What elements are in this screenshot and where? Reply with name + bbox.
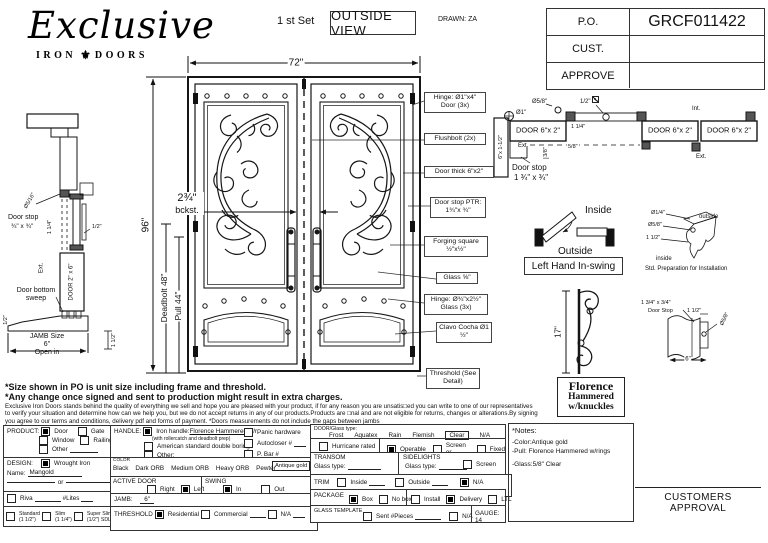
package-install-checkbox[interactable] xyxy=(411,495,420,504)
package-delivery-label: Delivery xyxy=(459,496,482,503)
design-or-label: or xyxy=(58,479,64,486)
disclaimer-line2: *Any change once signed and sent to prod… xyxy=(5,392,343,402)
sidelights-screen-checkbox[interactable] xyxy=(463,460,472,469)
swing-type-label: Left Hand In-swing xyxy=(524,257,623,275)
threshold-com-blank[interactable] xyxy=(250,511,266,518)
logo-word-doors: DOORS xyxy=(95,50,148,61)
handle-american-checkbox[interactable] xyxy=(144,442,153,451)
approve-row: APPROVE xyxy=(547,63,764,88)
trim-outside-blank[interactable] xyxy=(432,479,448,486)
disclaimer-paragraph: Exclusive Iron Doors stands behind the q… xyxy=(5,403,538,425)
standard-sub: (1 1/2") xyxy=(19,517,36,523)
swing-diagram xyxy=(535,212,614,246)
td-stop2: 1 ¾" x ¾" xyxy=(514,173,548,182)
trim-title: TRIM xyxy=(314,479,329,486)
logo-word-iron: IRON xyxy=(36,50,76,61)
package-nobox-label: No box xyxy=(392,496,412,503)
product-other-label: Other xyxy=(52,446,68,453)
left-jamb-detail xyxy=(8,114,112,353)
package-box-checkbox[interactable] xyxy=(349,495,358,504)
thickness-cell: Standard(1 1/2") Slim(1 1/4") Super Slim… xyxy=(3,506,116,527)
riva-checkbox[interactable] xyxy=(7,494,16,503)
dim-backset: 2¾" bckst. xyxy=(170,192,204,215)
handle-extra-options: Panic hardware Autocloser # P. Bar # xyxy=(244,428,306,459)
pull-name3: w/knuckles xyxy=(558,403,624,413)
trim-na-checkbox[interactable] xyxy=(460,478,469,487)
threshold-com-checkbox[interactable] xyxy=(201,510,210,519)
note-pull: -Pull: Florence Hammered w/rings xyxy=(512,448,630,455)
threshold-res-checkbox[interactable] xyxy=(155,510,164,519)
pull-handle-detail xyxy=(562,289,598,374)
lites-label: #Lites xyxy=(63,495,80,502)
pull-dim: 17" xyxy=(553,325,562,339)
design-cell: DESIGN: Wrought Iron Name: Mangold or xyxy=(3,457,118,495)
design-title: DESIGN: xyxy=(7,460,33,467)
superslim-sub: (1/2") SDL xyxy=(87,517,111,523)
po-label: P.O. xyxy=(547,9,630,35)
td-dia1: Ø1" xyxy=(516,110,526,117)
handle-iron-name: Florence Hammered xyxy=(190,428,247,435)
left-dim12: 1/2" xyxy=(92,224,102,230)
slim-checkbox[interactable] xyxy=(42,512,51,521)
package-install-label: Install xyxy=(424,496,440,503)
template-sent-blank[interactable] xyxy=(415,513,441,520)
threshold-na-label: N/A xyxy=(281,511,292,518)
threshold-com-label: Commercial xyxy=(214,511,248,518)
left-doorstop-label: Door stop xyxy=(8,214,38,222)
td-door2: DOOR 6"x 2" xyxy=(648,127,692,136)
left-doorstop-size: ¾" x ¾" xyxy=(11,223,33,230)
prep-outside: outside xyxy=(699,214,718,221)
color-mediumorb[interactable]: Medium ORB xyxy=(171,465,209,472)
sidelights-title: SIDELIGHTS xyxy=(403,454,440,461)
color-cell: COLOR Black Dark ORB Medium ORB Heavy OR… xyxy=(110,457,312,478)
design-wrought-label: Wrought Iron xyxy=(54,460,90,467)
autocloser-checkbox[interactable] xyxy=(244,439,253,448)
trim-outside-label: Outside xyxy=(408,479,430,486)
template-sent-checkbox[interactable] xyxy=(363,512,372,521)
package-box-label: Box xyxy=(362,496,373,503)
swing-inside-label: Inside xyxy=(585,205,612,217)
customers-approval-label: CUSTOMERS APPROVAL xyxy=(664,492,731,514)
left-dim112: 1 1/2" xyxy=(111,333,117,347)
riva-label: Riva xyxy=(20,495,33,502)
active-right-label: Right xyxy=(160,486,175,493)
note-color: -Color:Antique gold xyxy=(512,439,630,446)
slim-label: Slim(1 1/4") xyxy=(55,511,72,523)
cell-divider xyxy=(379,438,380,453)
jamb-profile-detail xyxy=(668,310,717,360)
po-table: P.O.GRCF011422 CUST. APPROVE xyxy=(546,8,765,90)
td-dim58: 5/8" xyxy=(567,144,579,150)
td-dia58: Ø5/8" xyxy=(532,99,547,106)
sidelights-glass-label: Glass type: xyxy=(405,463,437,470)
design-name-label: Name: xyxy=(7,470,26,477)
template-na-checkbox[interactable] xyxy=(449,512,458,521)
color-title: COLOR xyxy=(113,458,130,463)
product-railing-checkbox[interactable] xyxy=(80,436,89,445)
jamb-size-label: JAMB Size xyxy=(22,333,72,341)
trim-inside-blank[interactable] xyxy=(369,479,385,486)
hurricane-label: Hurricane rated xyxy=(332,443,375,450)
glass-template-cell: GLASS TEMPLATE Sent #Pieces N/A GAUGE: 1… xyxy=(310,505,506,523)
cell-divider xyxy=(311,438,505,439)
profile-d6: 6" xyxy=(684,357,691,364)
prep-d112: 1 1/2" xyxy=(646,235,660,241)
swing-outside-label: Outside xyxy=(558,246,592,258)
customers-approval[interactable]: CUSTOMERS APPROVAL xyxy=(635,487,761,514)
set-label: 1 st Set xyxy=(277,15,314,28)
color-options: Black Dark ORB Medium ORB Heavy ORB Pewt… xyxy=(113,465,276,472)
callout-clavo: Clavo Cocha Ø1 ½" xyxy=(436,322,492,343)
transom-title: TRANSOM xyxy=(314,454,346,461)
handle-iron-pre: Iron handle: xyxy=(156,428,189,435)
cust-label: CUST. xyxy=(547,36,630,62)
autocloser-blank[interactable] xyxy=(294,440,306,447)
left-dim114: 1 1/4" xyxy=(47,220,53,234)
package-ltl-checkbox[interactable] xyxy=(488,495,497,504)
left-door-size: DOOR 2" x 6" xyxy=(69,264,76,301)
template-sent-label: Sent #Pieces xyxy=(376,513,413,520)
standard-checkbox[interactable] xyxy=(6,512,15,521)
profile-d112: 1 1/2" xyxy=(687,308,701,314)
design-name-value[interactable]: Mangold xyxy=(28,469,82,477)
spec-sheet: Exclusive IRON ⚜ DOORS 1 st Set OUTSIDE … xyxy=(0,0,768,543)
po-number: GRCF011422 xyxy=(630,9,764,35)
sidelights-screen-label: Screen xyxy=(476,461,496,468)
pull-name-box: Florence Hammered w/knuckles xyxy=(557,377,625,417)
or-divider xyxy=(7,482,55,483)
product-gate-checkbox[interactable] xyxy=(78,427,87,436)
trim-inside-checkbox[interactable] xyxy=(337,478,346,487)
color-heavyorb[interactable]: Heavy ORB xyxy=(216,465,249,472)
po-row: P.O.GRCF011422 xyxy=(547,9,764,36)
td-dim114: 1 1/4" xyxy=(570,124,586,130)
autocloser-label: Autocloser # xyxy=(257,440,292,447)
transom-glass-blank[interactable] xyxy=(348,463,381,470)
threshold-na-blank[interactable] xyxy=(293,511,305,518)
td-int1: Int. xyxy=(692,106,700,113)
slim-sub: (1 1/4") xyxy=(55,517,72,523)
gauge-label: GAUGE: 14 xyxy=(475,510,505,524)
color-darkorb[interactable]: Dark ORB xyxy=(135,465,164,472)
product-gate-label: Gate xyxy=(91,428,105,435)
product-cell: PRODUCT: Door Gate Window Railing Other xyxy=(3,425,118,461)
handle-iron-label: Iron handle:Florence Hammered w/r xyxy=(156,428,257,435)
package-title: PACKAGE xyxy=(314,492,344,499)
handle-cell: HANDLE: Iron handle:Florence Hammered w/… xyxy=(110,425,318,461)
td-dim38: 3/8" xyxy=(543,146,549,158)
pull-name1: Florence xyxy=(558,380,624,393)
cust-value[interactable] xyxy=(630,36,764,62)
profile-stop1: 1 3/4" x 3/4" xyxy=(641,300,671,306)
swing-title: SWING xyxy=(205,478,226,485)
transom-glass-label: Glass type: xyxy=(314,463,346,470)
color-black[interactable]: Black xyxy=(113,465,128,472)
trim-outside-checkbox[interactable] xyxy=(395,478,404,487)
riva-blank[interactable] xyxy=(35,495,61,502)
left-ext-label: Ext. xyxy=(39,263,46,273)
cell-divider xyxy=(398,453,399,475)
callout-flushbolt: Flushbolt (2x) xyxy=(424,133,486,145)
standard-label: Standard(1 1/2") xyxy=(19,511,40,523)
prep-d14: Ø1/4" xyxy=(651,210,665,216)
or-divider xyxy=(66,482,114,483)
callout-threshold: Threshold (See Detail) xyxy=(426,368,480,389)
backset-value: 2¾" xyxy=(170,192,204,205)
td-dim12-text: 1/2" xyxy=(580,99,590,105)
jamb-title: JAMB: xyxy=(114,496,133,503)
notes-title: *Notes: xyxy=(512,426,630,435)
product-other-blank[interactable] xyxy=(70,446,98,453)
prep-inside: inside xyxy=(656,256,672,263)
cell-divider xyxy=(471,506,472,522)
callout-door-thick: Door thick 6"x2" xyxy=(424,166,494,178)
superslim-checkbox[interactable] xyxy=(74,512,83,521)
product-other-checkbox[interactable] xyxy=(39,445,48,454)
product-door-label: Door xyxy=(54,428,68,435)
door-drawing xyxy=(188,77,420,371)
drawn-by: DRAWN: ZA xyxy=(438,16,477,24)
approve-label: APPROVE xyxy=(547,63,630,88)
td-jamb-size: 6"x 1-1/2" xyxy=(498,134,504,160)
panic-label: Panic hardware xyxy=(257,429,301,436)
callout-hinge-glass: Hinge: Ø¾"x2½" Glass (3x) xyxy=(424,294,488,315)
cell-divider xyxy=(406,490,407,506)
glass-type-cell: DOOR/Glass type: Frost Aquatex Rain Flem… xyxy=(310,424,506,454)
swing-out-label: Out xyxy=(274,486,284,493)
panic-checkbox[interactable] xyxy=(244,428,253,437)
callout-forging: Forging square ½"x½" xyxy=(424,236,488,257)
jamb-value[interactable]: 6" xyxy=(140,496,154,504)
active-left-label: Left xyxy=(194,486,205,493)
callout-glass: Glass ⅝" xyxy=(436,272,478,284)
design-wrought-checkbox[interactable] xyxy=(41,459,50,468)
callout-door-stop: Door stop PTR: 1¾"x ¾" xyxy=(430,197,486,218)
logo-subtitle: IRON ⚜ DOORS xyxy=(36,48,148,63)
cust-row: CUST. xyxy=(547,36,764,63)
threshold-title: THRESHOLD xyxy=(114,511,153,518)
package-nobox-checkbox[interactable] xyxy=(379,495,388,504)
td-door3: DOOR 6"x 2" xyxy=(707,127,751,136)
threshold-res-label: Residential xyxy=(168,511,199,518)
logo-exclusive: Exclusive xyxy=(28,4,215,47)
td-ext1: Ext. xyxy=(518,143,528,150)
disclaimer-line1: *Size shown in PO is unit size including… xyxy=(5,382,266,392)
jamb-size-value: 6" xyxy=(22,341,72,349)
backset-unit: bckst. xyxy=(170,205,204,215)
cell-divider xyxy=(201,477,202,494)
left-dim12b: 1/2" xyxy=(3,315,9,325)
active-door-title: ACTIVE DOOR xyxy=(113,478,156,485)
notes-box: *Notes: -Color:Antique gold -Pull: Flore… xyxy=(508,423,634,522)
td-stop1: Door stop xyxy=(512,163,547,172)
swing-in-label: In xyxy=(236,486,241,493)
handle-american-label: American standard double boring xyxy=(157,443,250,450)
handle-title: HANDLE: xyxy=(114,428,141,435)
td-ext2: Ext. xyxy=(696,154,706,161)
dim-pull: Pull 44" xyxy=(174,290,184,321)
note-glass: -Glass:5/8" Clear xyxy=(512,461,630,468)
dim-width: 72" xyxy=(288,57,305,69)
trim-na-label: N/A xyxy=(473,479,484,486)
package-delivery-checkbox[interactable] xyxy=(446,495,455,504)
handle-iron-checkbox[interactable] xyxy=(143,427,152,436)
approve-value[interactable] xyxy=(630,63,764,88)
product-title: PRODUCT: xyxy=(7,428,39,435)
callout-hinge-door: Hinge: Ø1"x4" Door (3x) xyxy=(424,92,486,113)
prep-d58: Ø5/8" xyxy=(648,222,662,228)
profile-stop2: Door Stop xyxy=(648,308,673,314)
td-dim12: 1/2" xyxy=(580,96,599,106)
color-selected[interactable]: Antique gold xyxy=(272,461,310,471)
transom-sidelights-cell: TRANSOM Glass type: SIDELIGHTS Glass typ… xyxy=(310,452,506,476)
left-sweep-label: Door bottom sweep xyxy=(16,287,56,303)
dim-deadbolt: Deadbolt 48" xyxy=(160,273,170,324)
hurricane-checkbox[interactable] xyxy=(319,442,328,451)
dim-height: 96" xyxy=(140,217,152,234)
left-jamb-size: JAMB Size 6" Open in xyxy=(22,333,72,357)
hatch-square-icon xyxy=(592,96,599,103)
view-title: OUTSIDE VIEW xyxy=(330,11,416,35)
product-window-label: Window xyxy=(52,437,74,444)
trim-inside-label: Inside xyxy=(350,479,367,486)
fleur-ornament-icon: ⚜ xyxy=(80,48,91,63)
threshold-cell: THRESHOLD Residential Commercial N/A xyxy=(110,506,318,531)
prep-caption: Std. Preparation for Installation xyxy=(645,266,727,273)
product-door-checkbox[interactable] xyxy=(41,427,50,436)
glass-template-title: GLASS TEMPLATE xyxy=(314,508,362,514)
lites-blank[interactable] xyxy=(81,495,93,502)
open-in-label: Open in xyxy=(22,349,72,357)
threshold-na-checkbox[interactable] xyxy=(268,510,277,519)
superslim-label: Super Slim(1/2") SDL xyxy=(87,511,112,523)
product-window-checkbox[interactable] xyxy=(39,436,48,445)
td-door1: DOOR 6"x 2" xyxy=(516,127,560,136)
